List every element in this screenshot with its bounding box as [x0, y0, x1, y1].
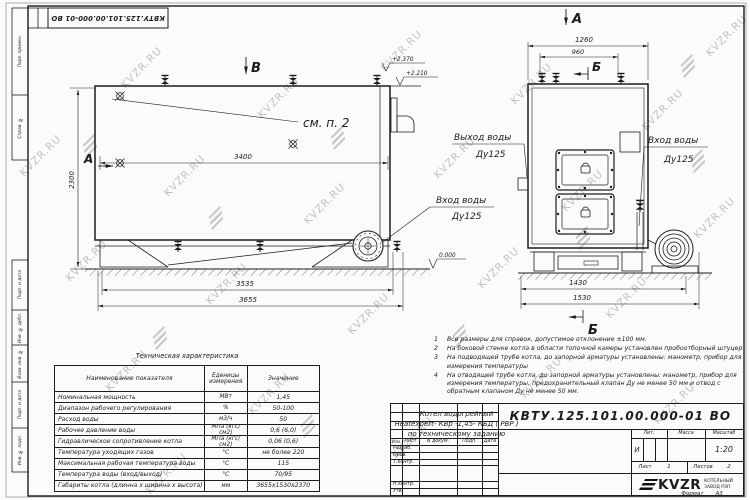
table-row: Диапазон рабочего регулирования%50-100: [55, 403, 319, 414]
table-row: Габариты котла (длинна х ширина х высота…: [55, 481, 319, 491]
table-row: Температура воды (вход/выход)°С70/95: [55, 470, 319, 481]
note-item: 2На боковой стенке котла в области топоч…: [434, 345, 746, 353]
outlet-nozzle: [518, 178, 528, 190]
svg-text:Ду125: Ду125: [475, 150, 506, 160]
lit-label: Лит.: [631, 429, 667, 438]
front-section-b-top-label: Б: [592, 60, 601, 74]
dim-960: 960: [540, 48, 618, 78]
margin-label: Инв. № дубл.: [12, 310, 28, 345]
row-utv: Утв.: [391, 488, 421, 495]
row-razrab: Разраб.: [391, 445, 421, 452]
side-inlet-label: Вход воды Ду125: [383, 196, 494, 242]
svg-text:Ду125: Ду125: [451, 212, 482, 222]
svg-text:1260: 1260: [575, 36, 593, 44]
margin-label: Взам. инв. №: [12, 345, 28, 382]
mass-label: Масса: [667, 429, 705, 438]
see-note-label: см. п. 2: [303, 116, 349, 130]
kvzr-logo-icon: [639, 479, 658, 490]
margin-label: Справ. №: [12, 95, 28, 160]
scale-value: 1:20: [705, 438, 743, 461]
margin-label: Подп. и дата: [12, 382, 28, 428]
col-doc: N докум.: [419, 438, 457, 445]
note-item: 4На отводящей трубе котла, до запорной а…: [434, 372, 746, 397]
title-block: КВТУ.125.101.00.000-01 ВО Изм. Лист N до…: [390, 403, 744, 496]
sheet-label: Лист: [633, 461, 657, 473]
margin-label: Инв. № подл.: [12, 428, 28, 472]
elevation-mark-2210: +2.210: [396, 71, 438, 85]
svg-text:Вход воды: Вход воды: [648, 136, 698, 146]
boiler-front-view: А Б Б 1260 960: [452, 9, 712, 338]
flue-bracket: [391, 98, 414, 132]
tech-table: Наименование показателя Еденицы измерени…: [54, 365, 320, 492]
front-outlet-label: Выход воды Ду125: [452, 133, 527, 177]
drawing-designation: КВТУ.125.101.00.000-01 ВО: [498, 405, 743, 427]
tech-table-header: Наименование показателя Еденицы измерени…: [55, 366, 319, 392]
side-panel: [620, 132, 640, 152]
table-row: Расход водым3/ч50: [55, 414, 319, 425]
table-row: Рабочее давление водыМПа (кгс/см2)0,6 (6…: [55, 425, 319, 436]
scale-label: Масштаб: [705, 429, 743, 438]
col-list: Лист: [402, 438, 419, 445]
sheet-value: 1: [659, 461, 679, 473]
svg-text:2300: 2300: [68, 171, 76, 189]
svg-text:3400: 3400: [234, 153, 252, 161]
row-nkontr: Н.контр.: [391, 481, 421, 488]
margin-label: Подп. и дата: [12, 260, 28, 310]
svg-text:Ду125: Ду125: [663, 155, 694, 165]
elevation-mark-zero: 0.000: [429, 253, 466, 268]
svg-text:1430: 1430: [569, 279, 587, 287]
col-data: Дата: [482, 438, 498, 445]
row-prov: Пров.: [391, 452, 421, 459]
svg-text:+2.370: +2.370: [392, 57, 414, 63]
dim-2300: 2300: [68, 88, 95, 269]
furnace-door-upper: [556, 150, 614, 190]
col-podp: Подп.: [457, 438, 482, 445]
company-name: КОТЕЛЬНЫЙ ЗАВОД РЭП: [704, 479, 733, 490]
sheets-value: 2: [721, 461, 737, 473]
svg-text:Вход воды: Вход воды: [436, 196, 486, 206]
front-section-a-label: А: [571, 12, 582, 27]
svg-text:+2.210: +2.210: [406, 71, 428, 77]
table-row: Максимальная рабочая температура воды°С1…: [55, 459, 319, 470]
blower-fan: [648, 230, 698, 273]
sheets-label: Листов: [688, 461, 718, 473]
notes-list: 1Все размеры для справок, допустимое отк…: [434, 336, 746, 396]
boiler-side-view: см. п. 2 В А +2.370 +2.210 0.000: [68, 57, 494, 311]
note-item: 3На подводящей трубе котла, до запорной …: [434, 354, 746, 370]
section-b-label: В: [251, 61, 261, 76]
dim-3400: 3400: [100, 153, 388, 170]
tech-table-title: Техническая характеристика: [54, 352, 320, 365]
note-item: 1Все размеры для справок, допустимое отк…: [434, 336, 746, 344]
col-izm: Изм.: [391, 438, 402, 445]
drawing-sheet: KVZR.RU KVZR.RU KVZR.RU KVZR.RU KVZR.RU …: [0, 0, 750, 500]
format-value: А3: [716, 491, 723, 497]
front-inlet-label: Вход воды Ду125: [639, 136, 708, 226]
lit-value: И: [631, 438, 643, 461]
svg-text:1530: 1530: [573, 294, 591, 302]
elevation-mark-2370: +2.370: [382, 57, 425, 71]
svg-text:3535: 3535: [236, 280, 254, 288]
row-tkontr: Т.контр.: [391, 459, 421, 465]
svg-text:3655: 3655: [239, 296, 257, 304]
furnace-door-lower: [556, 194, 614, 234]
table-row: Номинальная мощностьМВт1,45: [55, 392, 319, 403]
section-a-label: А: [83, 152, 93, 166]
svg-text:Выход воды: Выход воды: [454, 133, 511, 143]
table-row: Гидравлическое сопротивление котлаМПа (к…: [55, 436, 319, 447]
format-strip: Формат А3: [660, 491, 744, 497]
table-row: Температура уходящих газов°Сне более 220: [55, 448, 319, 459]
svg-text:960: 960: [572, 48, 584, 56]
format-label: Формат: [681, 491, 703, 497]
top-stamp-code: КВТУ.125.101.00.000-01 ВО: [48, 8, 168, 28]
inlet-flange: [353, 231, 383, 261]
margin-label: Перв. примен.: [12, 8, 28, 95]
tech-characteristics: Техническая характеристика Наименование …: [54, 352, 320, 492]
see-note-leader: [112, 99, 298, 122]
svg-text:0.000: 0.000: [439, 253, 456, 259]
